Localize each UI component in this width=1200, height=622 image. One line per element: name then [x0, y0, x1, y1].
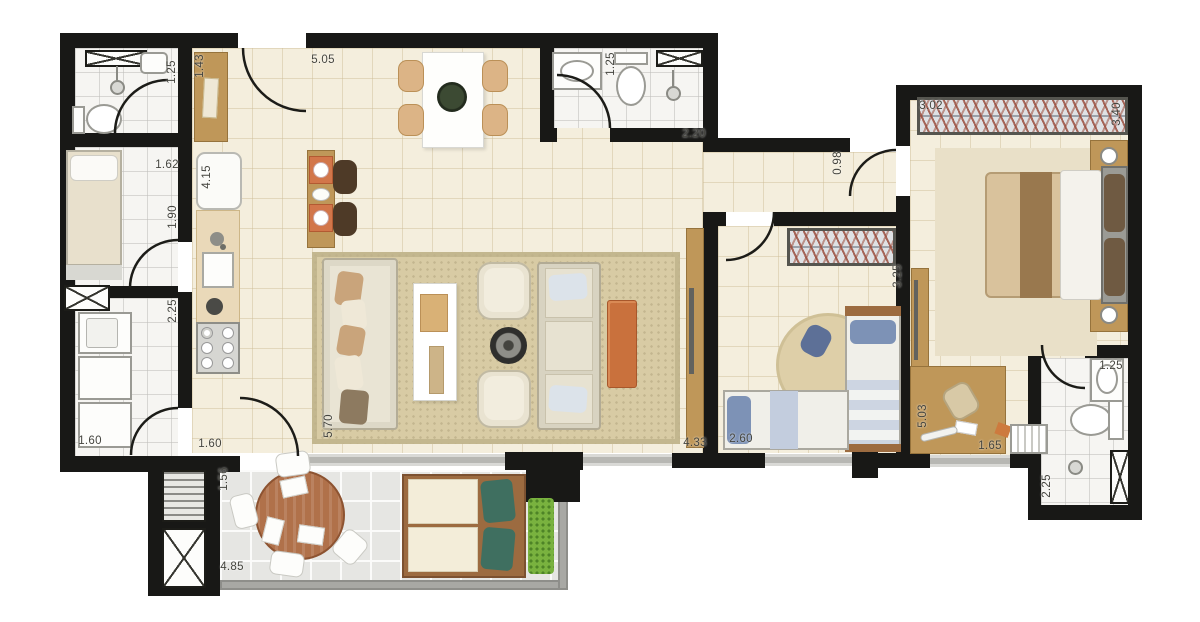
dimension-laundry-depth: 2.25	[167, 299, 179, 323]
dimension-balcony-width: 4.85	[220, 561, 244, 573]
door-entry	[243, 48, 306, 111]
floor-plan: 1.251.435.051.252.200.983.023.401.624.15…	[0, 0, 1200, 622]
dimension-kitchen-depth: 4.15	[201, 165, 213, 189]
dimension-living-width: 5.05	[311, 54, 335, 66]
dimension-maid-room-depth: 1.90	[167, 205, 179, 229]
dimension-service-bath-width: 1.25	[166, 60, 178, 84]
dimension-maid-room-width: 1.62	[155, 159, 179, 171]
door-balcony	[240, 398, 298, 456]
dimension-kids-room-width: 2.60	[729, 433, 753, 445]
door-laundry	[131, 408, 178, 455]
door-master	[850, 150, 896, 196]
dimension-master-desk: 1.65	[978, 440, 1002, 452]
door-arcs	[0, 0, 1200, 622]
door-service-bath	[115, 80, 168, 133]
door-ensuite	[1042, 345, 1085, 388]
dimension-laundry-width: 1.60	[78, 435, 102, 447]
dimension-living-length: 4.33	[683, 437, 707, 449]
dimension-bathroom2-sink: 1.25	[605, 52, 617, 76]
dimension-bathroom2-width: 2.20	[682, 128, 706, 140]
dimension-kids-wardrobe: 3.25	[892, 264, 904, 288]
dimension-living-depth: 5.70	[323, 414, 335, 438]
dimension-ensuite-sink: 1.25	[1099, 360, 1123, 372]
dimension-master-length: 5.03	[917, 404, 929, 428]
dimension-master-depth: 3.40	[1111, 102, 1123, 126]
door-maid	[130, 240, 178, 288]
dimension-master-wardrobe: 3.02	[919, 100, 943, 112]
door-bathroom2	[557, 75, 610, 128]
dimension-kitchen-hall-width: 1.60	[198, 438, 222, 450]
dimension-ensuite-depth: 2.25	[1041, 474, 1053, 498]
dimension-hall-width: 0.98	[832, 151, 844, 175]
dimension-entry-cabinet: 1.43	[194, 54, 206, 78]
door-kids	[726, 212, 774, 260]
dimension-balcony-depth: 1.56	[218, 467, 230, 491]
